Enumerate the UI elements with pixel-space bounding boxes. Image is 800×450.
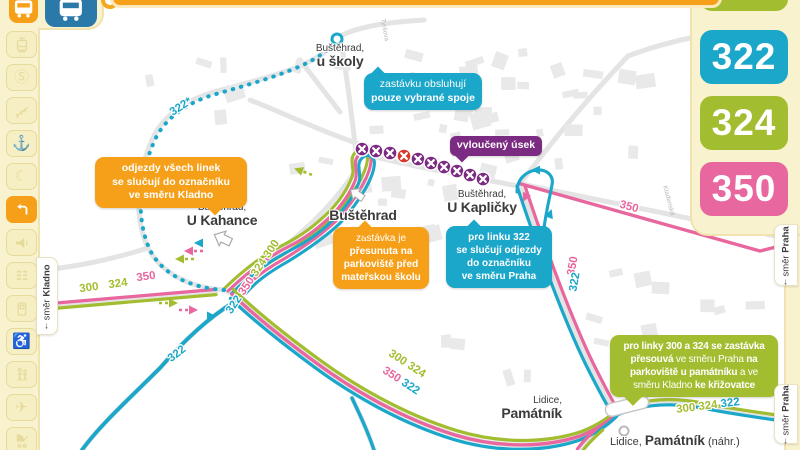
excluded-x-icon [355, 142, 369, 156]
route-badge-350: 350 [700, 162, 788, 216]
down-arrow-icon: ↓ [783, 276, 788, 286]
excluded-x-icon [463, 168, 477, 182]
stop-label-uskoly: Buštěhrad,u školy [316, 43, 364, 70]
excluded-x-icon [411, 152, 425, 166]
stop-label-lidice: Lidice,Památník [500, 395, 562, 422]
callout-odjezdy-kladno: odjezdy všech linekse slučují do označní… [95, 157, 247, 208]
callout-vylouceny-usek: vyloučený úsek [450, 136, 542, 156]
announcement-icon[interactable] [6, 229, 37, 256]
bus-diversion-map: Ⓢ⚓☾♿✈ 300322324350 ↓ směr Kladno ↓ směr … [0, 0, 800, 450]
wheelchair-icon[interactable]: ♿ [6, 328, 37, 355]
route-direction-arrow [179, 306, 198, 315]
direction-tab-praha-bottom: ↓ směr Praha [774, 384, 798, 444]
kahance-relocation-arrow [211, 227, 234, 249]
direction-tab-praha-top: ↓ směr Praha [774, 224, 798, 286]
excluded-x-icon [424, 156, 438, 170]
callout-uskoly-vybrane-spoje: zastávku obsluhujípouze vybrané spoje [364, 73, 482, 110]
ticket-icon[interactable] [6, 295, 37, 322]
direction-tab-kladno: ↓ směr Kladno [36, 257, 58, 335]
excluded-x-icon [476, 172, 490, 186]
stroller-icon[interactable] [6, 427, 37, 450]
detour-icon[interactable] [6, 196, 37, 223]
excluded-x-icon [437, 160, 451, 174]
route-direction-arrow [175, 255, 194, 264]
timetable-icon[interactable] [6, 262, 37, 289]
route-badge-322: 322 [700, 30, 788, 84]
bus-regional-icon[interactable] [9, 0, 38, 23]
excluded-x-red-icon [397, 149, 411, 163]
route-direction-arrow [184, 247, 203, 256]
excluded-x-icon [450, 164, 464, 178]
bus-city-icon[interactable] [45, 0, 97, 27]
excluded-x-icon [383, 146, 397, 160]
route-direction-arrow [194, 239, 203, 248]
tram-icon[interactable] [6, 31, 37, 58]
airport-icon[interactable]: ✈ [6, 394, 37, 421]
family-icon[interactable] [6, 361, 37, 388]
route-badge-324: 324 [700, 96, 788, 150]
night-service-icon[interactable]: ☾ [6, 163, 37, 190]
boat-icon[interactable]: ⚓ [6, 130, 37, 157]
stop-label-kaplicky: Buštěhrad,U Kapličky [447, 189, 517, 216]
funicular-icon[interactable] [6, 97, 37, 124]
down-arrow-icon: ↓ [44, 320, 49, 330]
sidebar-icon-column: Ⓢ⚓☾♿✈ [6, 31, 37, 450]
stop-label-lidice-nahr: Lidice, Památník (náhr.) [610, 433, 740, 448]
callout-linky-300-324: pro linky 300 a 324 se zastávkapřesouvá … [610, 335, 778, 397]
top-bar [110, 0, 722, 8]
route-322-southwest [82, 302, 234, 450]
s-train-icon[interactable]: Ⓢ [6, 64, 37, 91]
down-arrow-icon: ↓ [783, 435, 788, 445]
callout-zastavka-presunuta: zastávka jepřesunuta naparkoviště předma… [333, 227, 429, 289]
excluded-x-icon [369, 144, 383, 158]
route-322-south-branch [352, 398, 374, 450]
callout-linka-322-praha: pro linku 322se slučují odjezdydo označn… [446, 226, 552, 288]
